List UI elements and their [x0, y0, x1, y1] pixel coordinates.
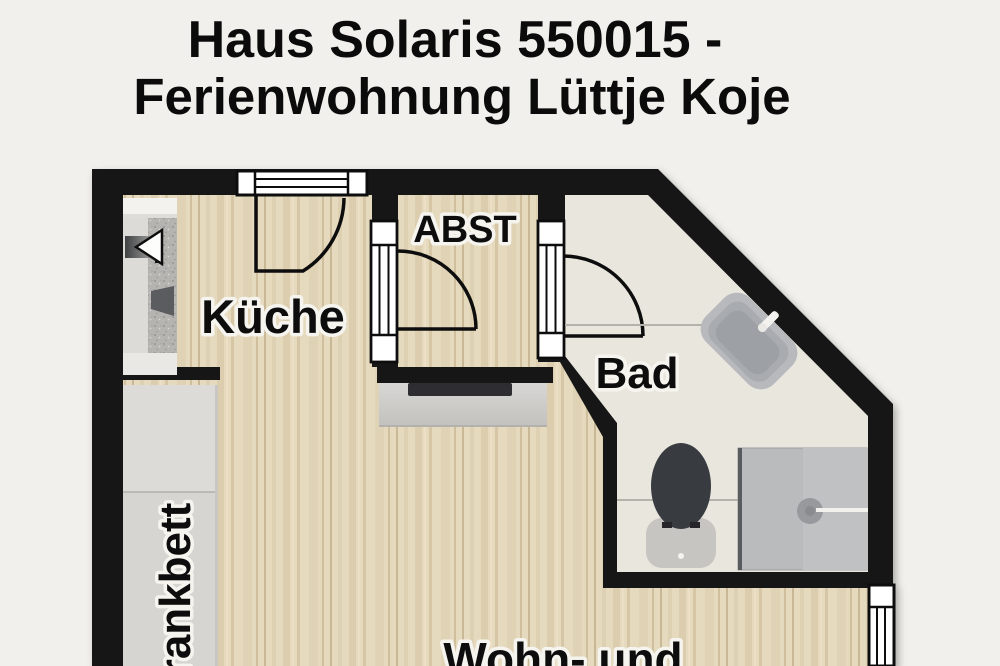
- storage-bottom-wall: [377, 367, 553, 383]
- kitchen-window-icon: [237, 171, 367, 195]
- storage-label: ABST: [413, 209, 516, 251]
- floor-plan-page: Haus Solaris 550015 - Ferienwohnung Lütt…: [0, 0, 1000, 666]
- shower-icon: [738, 448, 868, 570]
- living-room-label: Wohn- und: [443, 633, 682, 666]
- floor-plan-image: Haus Solaris 550015 - Ferienwohnung Lütt…: [0, 0, 1000, 666]
- storage-door-frame-icon: [371, 221, 397, 362]
- toilet-icon: [646, 443, 716, 568]
- living-window-icon: [869, 585, 894, 666]
- page-title-line2: Ferienwohnung Lüttje Koje: [133, 68, 790, 125]
- kitchen-counter: [123, 198, 177, 375]
- tv-sideboard-icon: [379, 383, 547, 426]
- kitchen-label: Küche: [201, 290, 345, 343]
- page-title-line1: Haus Solaris 550015 -: [188, 11, 723, 69]
- wall-bed-label: Schrankbett: [151, 502, 200, 666]
- bathroom-label: Bad: [595, 349, 678, 398]
- bathroom-door-frame-icon: [538, 221, 564, 358]
